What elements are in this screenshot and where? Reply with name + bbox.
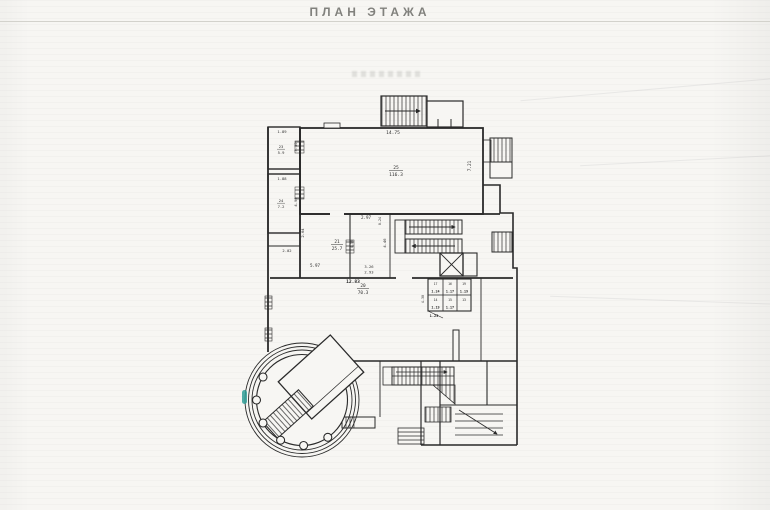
dim-mid-h: 2.93 <box>364 270 373 275</box>
dim-room23-h: 3.30 <box>293 142 298 152</box>
left-outer-wall <box>265 127 300 352</box>
room-21-number: 21 <box>334 239 340 245</box>
floor-plan-drawing: 25 116.3 21 25.7 20 70.3 23 5.9 24 7.2 1… <box>0 0 770 510</box>
wc-label: 19 <box>462 282 466 286</box>
dim-hall-height: 7.21 <box>467 160 473 171</box>
scanned-floor-plan-page: ПЛАН ЭТАЖА <box>0 0 770 510</box>
dim-mid-d: 2.02 <box>282 248 291 253</box>
dim-mid-a: 2.97 <box>361 215 372 220</box>
interior-staircase <box>395 220 462 253</box>
wc-label: 14 <box>434 298 438 302</box>
dim-mid-b: 0.24 <box>378 217 382 225</box>
dim-top-width: 14.75 <box>386 130 400 136</box>
room-24-area: 7.2 <box>278 204 285 209</box>
dim-room23-w: 1.89 <box>277 129 287 134</box>
right-outer-wall-step <box>483 185 517 445</box>
dim-mid-f: 4.58 <box>350 240 354 248</box>
room-20-area: 70.3 <box>358 290 369 296</box>
wc-label: 16 <box>448 282 452 286</box>
wc-dim: 1.17 <box>446 290 454 294</box>
dim-mid-j: 4.46 <box>382 238 387 248</box>
wc-dim: 1.23 <box>430 314 439 318</box>
room-labels: 25 116.3 21 25.7 20 70.3 23 5.9 24 7.2 <box>277 144 403 296</box>
dim-mid-k: 4.30 <box>421 295 425 303</box>
dim-mid-e: 5.97 <box>310 263 321 268</box>
wc-dim: 1.17 <box>446 306 454 310</box>
duct-shaft <box>453 330 459 361</box>
wc-label: 15 <box>448 298 452 302</box>
entrance-steps <box>398 428 424 444</box>
room-24-number: 24 <box>279 198 284 203</box>
dim-mid-g: 3.26 <box>364 264 374 269</box>
dimension-labels: 14.75 7.21 1.89 3.30 1.88 4.90 2.97 0.24… <box>277 129 473 303</box>
lower-staircase <box>383 367 455 422</box>
wc-cell-labels: 17 16 19 1.24 1.17 1.19 14 15 13 1.19 1.… <box>430 282 468 318</box>
dim-room24-w: 1.88 <box>277 176 287 181</box>
corner-stair <box>455 410 503 435</box>
room-23-area: 5.9 <box>278 150 286 155</box>
elevator-shaft <box>440 253 477 276</box>
dim-mid-i: 12.83 <box>346 279 360 285</box>
dim-room24-h: 4.90 <box>293 197 298 207</box>
room-23-number: 23 <box>279 144 284 149</box>
room-21-area: 25.7 <box>332 246 343 252</box>
wc-dim: 1.19 <box>460 290 468 294</box>
wc-dim: 1.19 <box>431 306 439 310</box>
teal-mark <box>242 390 247 404</box>
dim-mid-c: 2.64 <box>300 228 305 238</box>
room-24 <box>268 174 304 233</box>
wc-label: 17 <box>434 282 438 286</box>
right-external-stair-upper <box>483 138 512 178</box>
wc-label: 13 <box>462 298 466 302</box>
room-25-number: 25 <box>393 165 399 171</box>
room-20-number: 20 <box>360 283 366 289</box>
room-25-area: 116.3 <box>389 172 403 178</box>
wc-dim: 1.24 <box>431 290 439 294</box>
